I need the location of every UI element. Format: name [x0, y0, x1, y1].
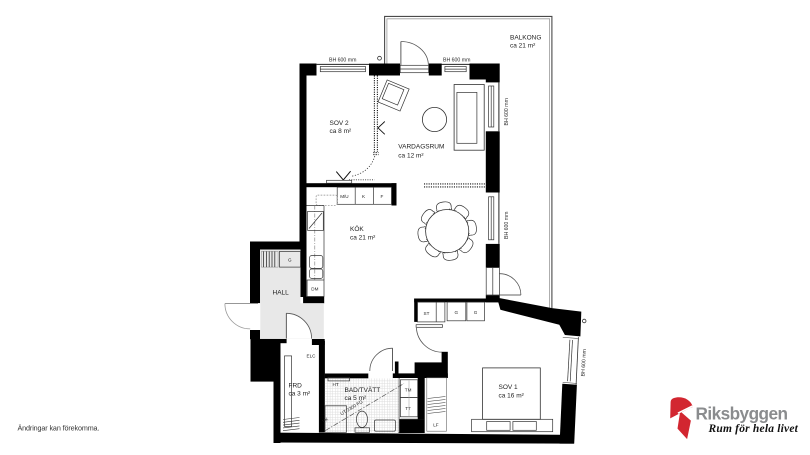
svg-text:ST: ST	[424, 311, 430, 316]
svg-text:ca 16 m²: ca 16 m²	[499, 392, 525, 399]
svg-text:Rum för hela livet: Rum för hela livet	[708, 423, 799, 435]
svg-text:ca 21 m²: ca 21 m²	[510, 43, 536, 50]
svg-text:M/U: M/U	[340, 194, 348, 199]
svg-text:BH 600 mm: BH 600 mm	[504, 212, 510, 239]
svg-text:BH 600 mm: BH 600 mm	[329, 58, 356, 64]
svg-text:VARDAGSRUM: VARDAGSRUM	[398, 143, 444, 150]
svg-text:F: F	[381, 194, 384, 199]
svg-text:SOV 1: SOV 1	[499, 384, 519, 391]
svg-text:ca 21 m²: ca 21 m²	[350, 235, 376, 242]
svg-text:Ändringar kan förekomma.: Ändringar kan förekomma.	[18, 424, 100, 433]
svg-text:G: G	[474, 310, 478, 315]
svg-text:ca 12 m²: ca 12 m²	[398, 152, 424, 159]
svg-text:BH 600 mm: BH 600 mm	[504, 98, 510, 125]
svg-text:G: G	[288, 258, 292, 263]
svg-text:LF: LF	[433, 422, 439, 427]
svg-text:BALKONG: BALKONG	[510, 35, 541, 42]
svg-text:TT: TT	[405, 406, 411, 411]
svg-text:BH 600 mm: BH 600 mm	[443, 58, 470, 64]
svg-text:FRD: FRD	[289, 383, 303, 390]
svg-text:ca 5 m²: ca 5 m²	[345, 395, 368, 402]
svg-text:TM: TM	[405, 388, 412, 393]
svg-text:ELC: ELC	[307, 354, 317, 359]
svg-text:HT: HT	[333, 382, 339, 387]
svg-text:HALL: HALL	[273, 290, 290, 297]
svg-text:DM: DM	[311, 287, 318, 292]
svg-text:SOV 2: SOV 2	[330, 120, 350, 127]
svg-text:ca 8 m²: ca 8 m²	[330, 128, 353, 135]
svg-text:BAD/TVÄTT: BAD/TVÄTT	[345, 386, 381, 394]
svg-text:KÖK: KÖK	[350, 225, 364, 233]
svg-text:Riksbyggen: Riksbyggen	[696, 403, 788, 423]
svg-text:G: G	[455, 310, 459, 315]
